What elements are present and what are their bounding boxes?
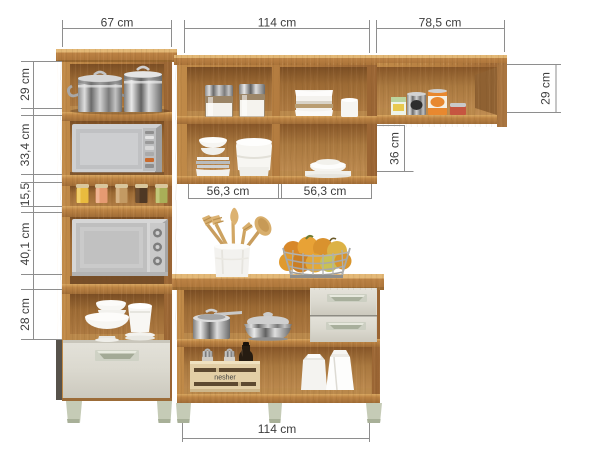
svg-text:114 cm: 114 cm <box>258 422 296 436</box>
svg-text:nesher: nesher <box>214 375 236 382</box>
svg-text:15,5: 15,5 <box>18 182 32 206</box>
svg-text:78,5 cm: 78,5 cm <box>419 16 462 30</box>
svg-text:114 cm: 114 cm <box>258 16 296 30</box>
svg-text:28 cm: 28 cm <box>18 298 32 331</box>
svg-text:56,3 cm: 56,3 cm <box>304 184 347 198</box>
svg-text:40,1 cm: 40,1 cm <box>18 223 32 266</box>
svg-text:29 cm: 29 cm <box>18 68 32 101</box>
svg-text:29 cm: 29 cm <box>539 72 553 105</box>
svg-text:33,4 cm: 33,4 cm <box>18 124 32 167</box>
svg-text:67 cm: 67 cm <box>101 16 134 30</box>
svg-text:56,3 cm: 56,3 cm <box>207 184 250 198</box>
svg-text:36 cm: 36 cm <box>388 132 402 165</box>
